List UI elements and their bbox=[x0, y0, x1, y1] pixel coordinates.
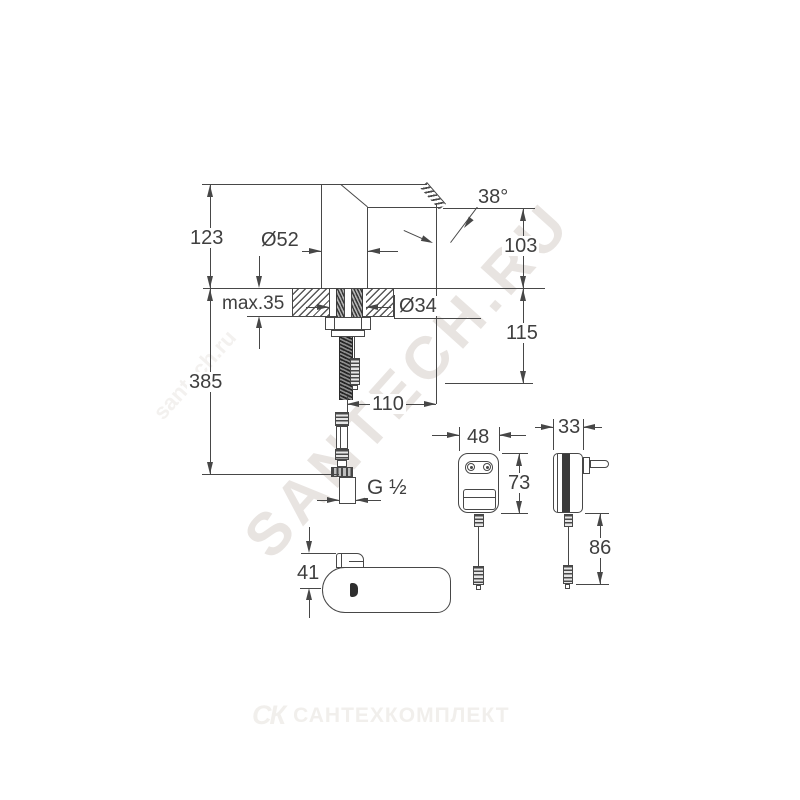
dim-stem bbox=[259, 256, 260, 277]
arrow-down bbox=[256, 276, 262, 288]
arrow-up bbox=[207, 289, 213, 301]
body-seam-band bbox=[562, 454, 570, 512]
leader-line bbox=[394, 295, 395, 318]
outline-spout-underside bbox=[367, 207, 441, 208]
shop-logo: СК bbox=[252, 700, 284, 731]
strain-relief bbox=[564, 514, 573, 527]
dim-adapter-cable-label: 86 bbox=[587, 538, 613, 558]
arrow-down bbox=[207, 462, 213, 474]
dim-adapter-width-label: 48 bbox=[465, 427, 491, 447]
cable bbox=[478, 527, 479, 566]
arrow-up bbox=[597, 514, 603, 526]
arrow-right bbox=[327, 497, 339, 503]
adapter-label-area bbox=[463, 489, 496, 510]
extension-line bbox=[553, 419, 554, 450]
arrow-down bbox=[516, 501, 522, 513]
watermark-shop: СК САНТЕХКОМПЛЕКТ bbox=[252, 700, 510, 731]
thread-size-label: G ½ bbox=[365, 477, 409, 498]
dim-adapter-height-label: 73 bbox=[506, 473, 532, 493]
spout-tip-line bbox=[349, 561, 363, 562]
arrow-outlet bbox=[421, 235, 434, 245]
arrow-up bbox=[516, 454, 522, 466]
deck-left-edge bbox=[292, 288, 293, 317]
arrow-up bbox=[256, 316, 262, 328]
outline-spout-joint bbox=[340, 184, 367, 207]
plug-pin bbox=[590, 460, 609, 468]
dim-spout-reach-label: 110 bbox=[370, 394, 406, 414]
nut-facet-line bbox=[334, 318, 335, 329]
dim-top-view-depth-label: 41 bbox=[295, 563, 321, 583]
arrow-up bbox=[207, 185, 213, 197]
label-area-line bbox=[464, 497, 495, 498]
cable bbox=[568, 527, 569, 565]
dim-total-height-label: 385 bbox=[187, 372, 224, 392]
leader-line bbox=[394, 318, 481, 319]
aerator-face bbox=[420, 182, 446, 210]
outline-top-edge bbox=[202, 184, 427, 185]
arrow-left bbox=[583, 424, 595, 430]
extension-line bbox=[499, 427, 500, 451]
arrow-down bbox=[207, 276, 213, 288]
dim-below-deck-label: 115 bbox=[504, 323, 540, 343]
technical-drawing-canvas: SANTECH.RU santech.ru СК САНТЕХКОМПЛЕКТ bbox=[0, 0, 800, 800]
dim-adapter-depth-label: 33 bbox=[556, 417, 582, 437]
dim-hole-diameter-label: Ø34 bbox=[397, 296, 439, 316]
arrow-down bbox=[597, 572, 603, 584]
dim-spout-angle-label: 38° bbox=[476, 187, 510, 207]
thread-end-tube bbox=[339, 477, 356, 504]
arrow-down bbox=[520, 371, 526, 383]
arrow-left bbox=[347, 401, 359, 407]
arrow-down bbox=[306, 541, 312, 553]
arrow-left bbox=[366, 304, 378, 310]
extension-line-115-bottom bbox=[445, 383, 533, 384]
tube-neck bbox=[337, 460, 347, 467]
dim-outlet-height-label: 103 bbox=[502, 236, 539, 256]
arrow-left bbox=[499, 432, 511, 438]
arrow-right bbox=[309, 248, 321, 254]
supply-tube bbox=[336, 426, 348, 449]
dim-height-above-deck-label: 123 bbox=[188, 228, 225, 248]
dim-deck-thickness-label: max.35 bbox=[220, 294, 286, 313]
mounting-nut bbox=[325, 317, 371, 330]
arrow-right bbox=[447, 432, 459, 438]
deck-hole-edge bbox=[329, 289, 330, 316]
arrow-down bbox=[520, 276, 526, 288]
watermark-diagonal: SANTECH.RU bbox=[194, 148, 622, 612]
hex-union-nut bbox=[331, 467, 353, 477]
deck-hatch-left bbox=[292, 289, 329, 316]
extension-line bbox=[301, 553, 336, 554]
supply-tube-line bbox=[340, 427, 341, 448]
faucet-body-top bbox=[322, 567, 451, 613]
arrow-up bbox=[520, 209, 526, 221]
plug-base bbox=[583, 457, 590, 474]
extension-line bbox=[459, 427, 460, 451]
dim-stem bbox=[309, 600, 310, 618]
strain-relief bbox=[474, 514, 484, 527]
extension-line bbox=[502, 453, 528, 454]
tube-joint bbox=[335, 449, 349, 460]
shank-center-channel bbox=[344, 289, 352, 318]
deck-bottom-line bbox=[247, 316, 393, 317]
arrow-right bbox=[424, 401, 436, 407]
cable-connector bbox=[563, 565, 573, 584]
outline-left-edge bbox=[321, 184, 322, 288]
arrow-right bbox=[541, 424, 553, 430]
sensor-window bbox=[350, 583, 358, 597]
shop-name: САНТЕХКОМПЛЕКТ bbox=[293, 704, 509, 728]
body-edge-line bbox=[557, 454, 558, 512]
extension-line-385-bottom bbox=[202, 474, 339, 475]
pin-hole-dot bbox=[486, 466, 489, 469]
pin-hole-dot bbox=[470, 466, 473, 469]
arrow-up bbox=[520, 289, 526, 301]
arrow-left bbox=[368, 248, 380, 254]
dim-stem bbox=[309, 527, 310, 542]
washer bbox=[331, 330, 365, 337]
spout-tip-line bbox=[341, 554, 342, 567]
connector-tip bbox=[476, 585, 481, 590]
cable-connector bbox=[473, 566, 484, 585]
hose-fitting bbox=[335, 412, 349, 426]
extension-line bbox=[576, 584, 609, 585]
cable-plug-tip bbox=[352, 385, 358, 390]
dim-body-diameter-label: Ø52 bbox=[259, 230, 301, 250]
extension-line bbox=[501, 513, 528, 514]
sensor-cable bbox=[354, 337, 355, 358]
connector-tip bbox=[565, 584, 570, 589]
dim-stem bbox=[259, 328, 260, 349]
nut-facet-line bbox=[361, 318, 362, 329]
deck-hatch-right bbox=[366, 289, 393, 316]
arrow-angle bbox=[462, 217, 474, 230]
arrow-right bbox=[317, 304, 329, 310]
arrow-up bbox=[306, 588, 312, 600]
cable-plug bbox=[350, 358, 360, 385]
